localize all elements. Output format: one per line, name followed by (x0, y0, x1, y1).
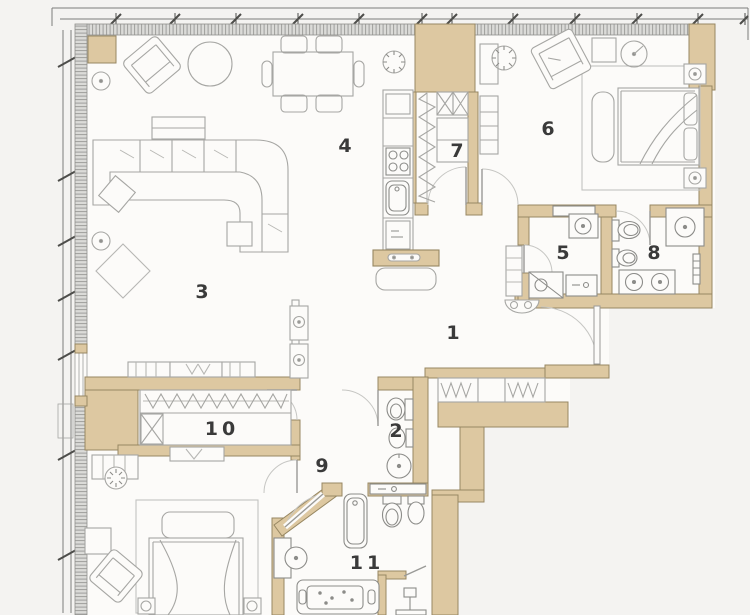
utility-cabinet (566, 275, 597, 296)
floor-plan: 1 2 3 4 5 6 7 8 9 10 11 (0, 0, 750, 615)
floor-plan-drawing: 1 2 3 4 5 6 7 8 9 10 11 (0, 0, 750, 615)
wall-bath11-diag-jamb (322, 483, 342, 496)
room-label-7: 7 (450, 140, 463, 162)
bed (618, 88, 699, 165)
window-wall-top-right (475, 24, 689, 35)
wall-hall-closet-top (425, 368, 545, 378)
wall-entry-bottom (545, 365, 609, 378)
shower (666, 208, 704, 246)
room-label-6: 6 (541, 118, 554, 140)
wall-wc2-right (413, 377, 428, 495)
room-label-4: 4 (338, 135, 351, 157)
room-label-2: 2 (389, 420, 402, 442)
wall-bath5-left-upper (518, 217, 529, 245)
room-label-3: 3 (195, 281, 208, 303)
bidet (612, 249, 637, 267)
window-wall-left-upper (75, 24, 87, 344)
pedestal-sink (387, 454, 411, 478)
bed-bench (592, 92, 614, 162)
wall-closet10-right (291, 420, 300, 447)
tv-stand (170, 447, 224, 461)
wall-balcony-jamb-top (75, 344, 87, 353)
room-label-10: 10 (205, 418, 239, 440)
media-partition (290, 300, 308, 378)
wall-wc2-top (378, 377, 413, 390)
wall-stack-upper (460, 427, 484, 497)
room-label-11: 11 (350, 552, 384, 574)
coat-closet (438, 378, 545, 402)
wall-hall-closet-mass (438, 402, 568, 427)
jacuzzi (297, 580, 379, 614)
wall-closet10-block (85, 390, 138, 450)
double-vanity (619, 270, 675, 294)
dining-table (273, 52, 353, 96)
wall-bath-partition (601, 217, 612, 294)
bathtub (344, 494, 367, 548)
wall-closet10-top (85, 377, 300, 390)
sofa-side-table (227, 222, 252, 246)
wall-right (699, 86, 712, 308)
wall-bath11-right (432, 495, 458, 615)
toilet (387, 398, 413, 420)
wall-closet7-right (468, 92, 478, 203)
wall-kitchen-top (415, 24, 475, 92)
bidet (408, 496, 424, 524)
wall-between-doors (466, 203, 482, 215)
room-label-9: 9 (315, 455, 328, 477)
wall-corner-column (88, 36, 116, 63)
window-wall-top (87, 24, 415, 35)
room-label-5: 5 (556, 242, 569, 264)
entry-door (594, 306, 600, 364)
towel-rail (693, 254, 700, 284)
wall-closet7-bottom (415, 203, 428, 215)
island-bench (376, 268, 436, 290)
room-label-1: 1 (446, 322, 459, 344)
room-label-8: 8 (647, 242, 660, 264)
hall-bench (128, 362, 255, 377)
side-table (85, 528, 111, 554)
wall-balcony-jamb-bottom (75, 396, 87, 406)
kitchen-counter (383, 90, 413, 252)
bed (149, 512, 243, 615)
toilet (383, 496, 402, 527)
